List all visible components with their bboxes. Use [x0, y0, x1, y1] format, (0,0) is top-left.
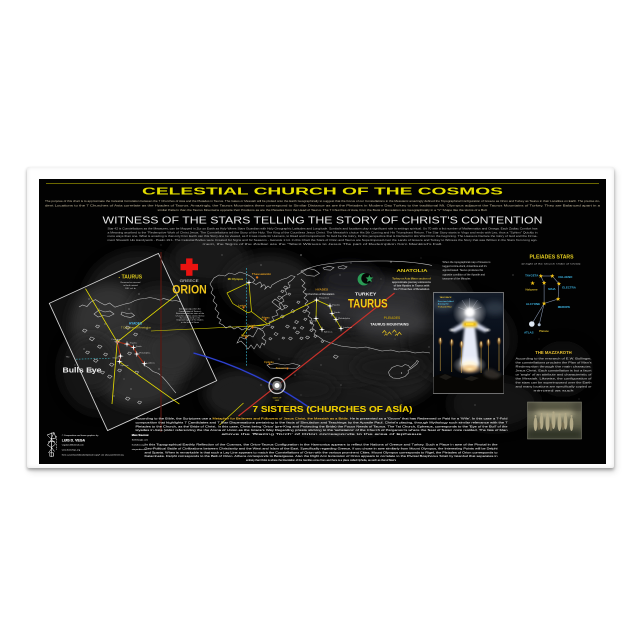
svg-text:Sardis: Sardis — [136, 346, 142, 348]
svg-text:More Sources:: More Sources: — [131, 434, 149, 437]
svg-text:storyaudio.com: storyaudio.com — [131, 448, 146, 451]
svg-text:ELECTRA: ELECTRA — [562, 285, 577, 289]
svg-text:PLEIADES: PLEIADES — [383, 316, 400, 320]
svg-text:Geo-Political Battle of Civili: Geo-Political Battle of Civilizations be… — [144, 446, 498, 450]
svg-text:Thessaloniki: Thessaloniki — [251, 272, 270, 276]
svg-text:the stars can be superimposed: the stars can be superimposed over the E… — [515, 382, 592, 385]
svg-text:to Earth rotated: to Earth rotated — [123, 284, 138, 287]
svg-text:Thyatira: Thyatira — [332, 304, 341, 307]
svg-text:opposite condition of the Apos: opposite condition of the Apostle and — [442, 272, 485, 276]
svg-text:Sardis: Sardis — [334, 311, 341, 314]
svg-text:HYADES: HYADES — [129, 322, 142, 326]
svg-text:Hyades in Asia (older referenc: Hyades in Asia (older referencing the th… — [135, 428, 508, 432]
svg-text:approximated. Taurus produces: approximated. Taurus produces the — [442, 268, 483, 272]
svg-text:of late Hyades in Taurus with: of late Hyades in Taurus with — [393, 283, 429, 287]
svg-text:PLEIADES STARS: PLEIADES STARS — [529, 255, 574, 261]
svg-text:Jesus Christ. Each constellati: Jesus Christ. Each constellation is but … — [515, 370, 592, 373]
svg-text:entirety that Christ is where: entirety that Christ is where the Revela… — [246, 458, 397, 462]
svg-text:fivefather.org: fivefather.org — [131, 443, 144, 446]
svg-text:MAN: MAN — [274, 399, 279, 402]
svg-text:Ephesus: Ephesus — [120, 365, 128, 367]
svg-text:more ways than one. What is am: more ways than one. What is amazing is t… — [107, 234, 537, 238]
svg-text:According to the Bible, the Sc: According to the Bible, the Scriptures u… — [135, 417, 508, 421]
svg-text:composition that highlights 7: composition that highlights 7 Candidates… — [135, 420, 508, 424]
svg-text:Ephesus: Ephesus — [324, 332, 333, 334]
svg-text:7 Churches of Revelation: 7 Churches of Revelation — [305, 292, 335, 296]
svg-text:Laodicea: Laodicea — [146, 362, 155, 364]
svg-text:Thyatira: Thyatira — [129, 342, 137, 345]
svg-text:MEROPE: MEROPE — [557, 305, 570, 309]
svg-text:Redemption through the main ch: Redemption through the main character, — [515, 366, 592, 369]
svg-text:in the lines of Gaza: in the lines of Gaza — [181, 321, 200, 324]
svg-text:Philadelphia: Philadelphia — [338, 318, 351, 320]
svg-text:twosome of the Miracles: twosome of the Miracles — [442, 276, 471, 280]
svg-text:SethGoogle.com: SethGoogle.com — [131, 438, 147, 441]
svg-text:TALK BACK: TALK BACK — [439, 296, 451, 299]
svg-text:ATLAS: ATLAS — [524, 331, 533, 335]
svg-text:In this Topographical Earthly: In this Topographical Earthly Reflection… — [144, 443, 498, 447]
svg-text:180° col. br: 180° col. br — [125, 287, 136, 290]
svg-text:from a purchase/donation/priva: from a purchase/donation/private copy? s… — [61, 453, 124, 456]
svg-text:or 'angle' of an attribute and: or 'angle' of an attribute and character… — [515, 374, 592, 377]
svg-text:CELESTIAL CHURCH OF THE COSMOS: CELESTIAL CHURCH OF THE COSMOS — [142, 187, 503, 198]
svg-text:When the topographical map of: When the topographical map of Greece is — [442, 260, 491, 264]
svg-text:ANATOLIA: ANATOLIA — [396, 268, 428, 273]
svg-text:Smyrna: Smyrna — [112, 358, 120, 360]
svg-text:© Composition and home-graphic: © Composition and home-graphics by — [61, 434, 99, 437]
svg-text:dent Locations to the 7 Church: dent Locations to the 7 Churches of Asia… — [45, 204, 601, 208]
svg-text:Mt Olympus: Mt Olympus — [227, 277, 243, 281]
svg-text:vegaluis@hotmail.com: vegaluis@hotmail.com — [61, 444, 83, 447]
svg-text:the 7 Churches of Revelation: the 7 Churches of Revelation — [393, 287, 429, 291]
svg-text:and many locations are specifi: and many locations are specifically copi… — [515, 386, 591, 389]
svg-text:Pergamum: Pergamum — [111, 339, 121, 341]
svg-text:Sparta: Sparta — [241, 335, 249, 338]
svg-text:WITNESS OF THE STARS TELLING T: WITNESS OF THE STARS TELLING THE STORY O… — [102, 216, 542, 227]
svg-text:Turkey or Asia Minor section o: Turkey or Asia Minor section of — [392, 276, 431, 280]
svg-text:TAYGETA: TAYGETA — [525, 274, 539, 278]
svg-text:Athens: Athens — [261, 317, 270, 320]
svg-text:tugged contra-clock, Antarctic: tugged contra-clock, Antarctica and it's — [442, 264, 487, 268]
svg-text:TAURUS: TAURUS — [348, 297, 388, 311]
svg-text:MAIA: MAIA — [548, 287, 556, 291]
svg-text:mirrored as such: mirrored as such — [533, 390, 574, 393]
svg-text:LUIS D. VEGA: LUIS D. VEGA — [61, 438, 85, 442]
svg-text:Pergamon: Pergamon — [319, 297, 330, 300]
svg-text:ment Sheweth His Handywork - P: ment Sheweth His Handywork - Psalm 19:1.… — [107, 238, 537, 242]
svg-text:7 SISTERS (CHURCHES OF ASÍA): 7 SISTERS (CHURCHES OF ASÍA) — [252, 403, 412, 414]
svg-text:TAURUS MOUNTAINS: TAURUS MOUNTAINS — [370, 323, 409, 327]
svg-text:Cydonia: Cydonia — [264, 361, 274, 364]
svg-text:THE MAZZAROTH: THE MAZZAROTH — [535, 350, 572, 355]
svg-text:Door two folded: Door two folded — [437, 300, 454, 303]
svg-text:ment, the Signs of the Zodiac: ment, the Signs of the Zodiac are the "S… — [202, 243, 443, 246]
svg-text:According to the research of E: According to the research of E.W. Bullin… — [515, 358, 592, 361]
svg-text:Star 42 is Constellations as t: Star 42 is Constellations as the Measure… — [107, 227, 538, 231]
svg-text:Pleiades to the Church, as the: Pleiades to the Church, as the Bride of … — [135, 424, 508, 428]
svg-text:Knossos: Knossos — [275, 367, 286, 370]
svg-text:ORION: ORION — [172, 284, 207, 297]
svg-text:Corinth: Corinth — [247, 325, 256, 328]
svg-text:- TAURUS: - TAURUS — [118, 275, 142, 281]
svg-text:7 Churches of Revelation: 7 Churches of Revelation — [120, 325, 151, 329]
svg-text:Reversed or mirrored: Reversed or mirrored — [120, 281, 140, 284]
svg-text:the Messiah. Likewise, the con: the Messiah. Likewise, the configuration… — [515, 378, 592, 381]
svg-text:HYADES: HYADES — [315, 288, 328, 292]
svg-text:similar Pattern than the Tauru: similar Pattern than the Taurus Mountain… — [157, 208, 487, 212]
svg-text:7 Church Rise: 7 Church Rise — [437, 305, 452, 308]
svg-text:Smyrna: Smyrna — [309, 320, 317, 323]
svg-text:Philadelphia: Philadelphia — [139, 353, 151, 355]
svg-text:above the 'Blazing Torch' of O: above the 'Blazing Torch' of Orion corre… — [221, 432, 423, 436]
svg-text:and Sparta. When is remarkable: and Sparta. When is remarkable is that s… — [144, 450, 498, 454]
svg-text:CELAENO: CELAENO — [558, 275, 573, 279]
svg-text:Laodicea: Laodicea — [343, 327, 353, 329]
svg-text:Pleione: Pleione — [539, 329, 549, 333]
svg-text:The purpose of this chart is t: The purpose of this chart is to approxim… — [45, 199, 600, 203]
svg-text:www.homchips.org: www.homchips.org — [61, 449, 80, 452]
svg-text:Halcyone: Halcyone — [525, 287, 537, 291]
svg-text:ALCYONE: ALCYONE — [525, 302, 539, 306]
svg-text:the constellations proclaim th: the constellations proclaim the Plan of … — [515, 362, 592, 365]
svg-text:Among the: Among the — [437, 303, 449, 306]
svg-text:(in light of the Church Order: (in light of the Church Order of Christ) — [521, 263, 581, 266]
svg-text:Bulls Eye: Bulls Eye — [62, 368, 101, 375]
svg-text:approximate journey emissions: approximate journey emissions — [392, 280, 431, 284]
svg-text:Kalambaka. Delphi corresponds: Kalambaka. Delphi corresponds to the Bel… — [144, 454, 498, 458]
svg-text:a Meaning ascribed to the "Red: a Meaning ascribed to the "Redemptive Wo… — [107, 230, 538, 234]
svg-text:Larissa: Larissa — [238, 305, 247, 308]
